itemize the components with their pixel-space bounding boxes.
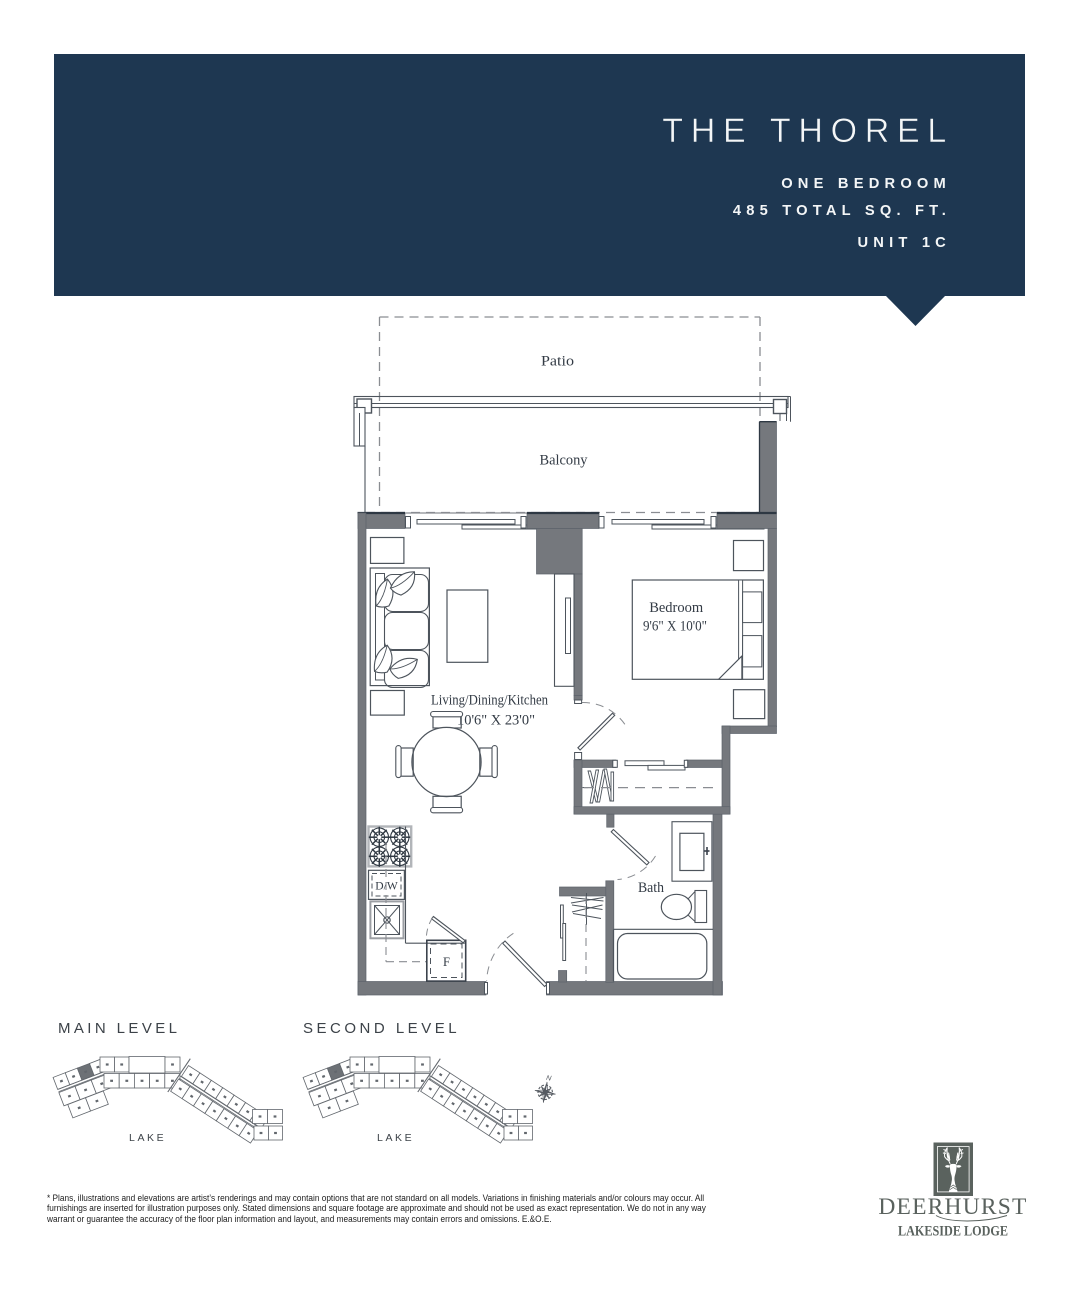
svg-text:LAKESIDE LODGE: LAKESIDE LODGE	[898, 1224, 1008, 1240]
